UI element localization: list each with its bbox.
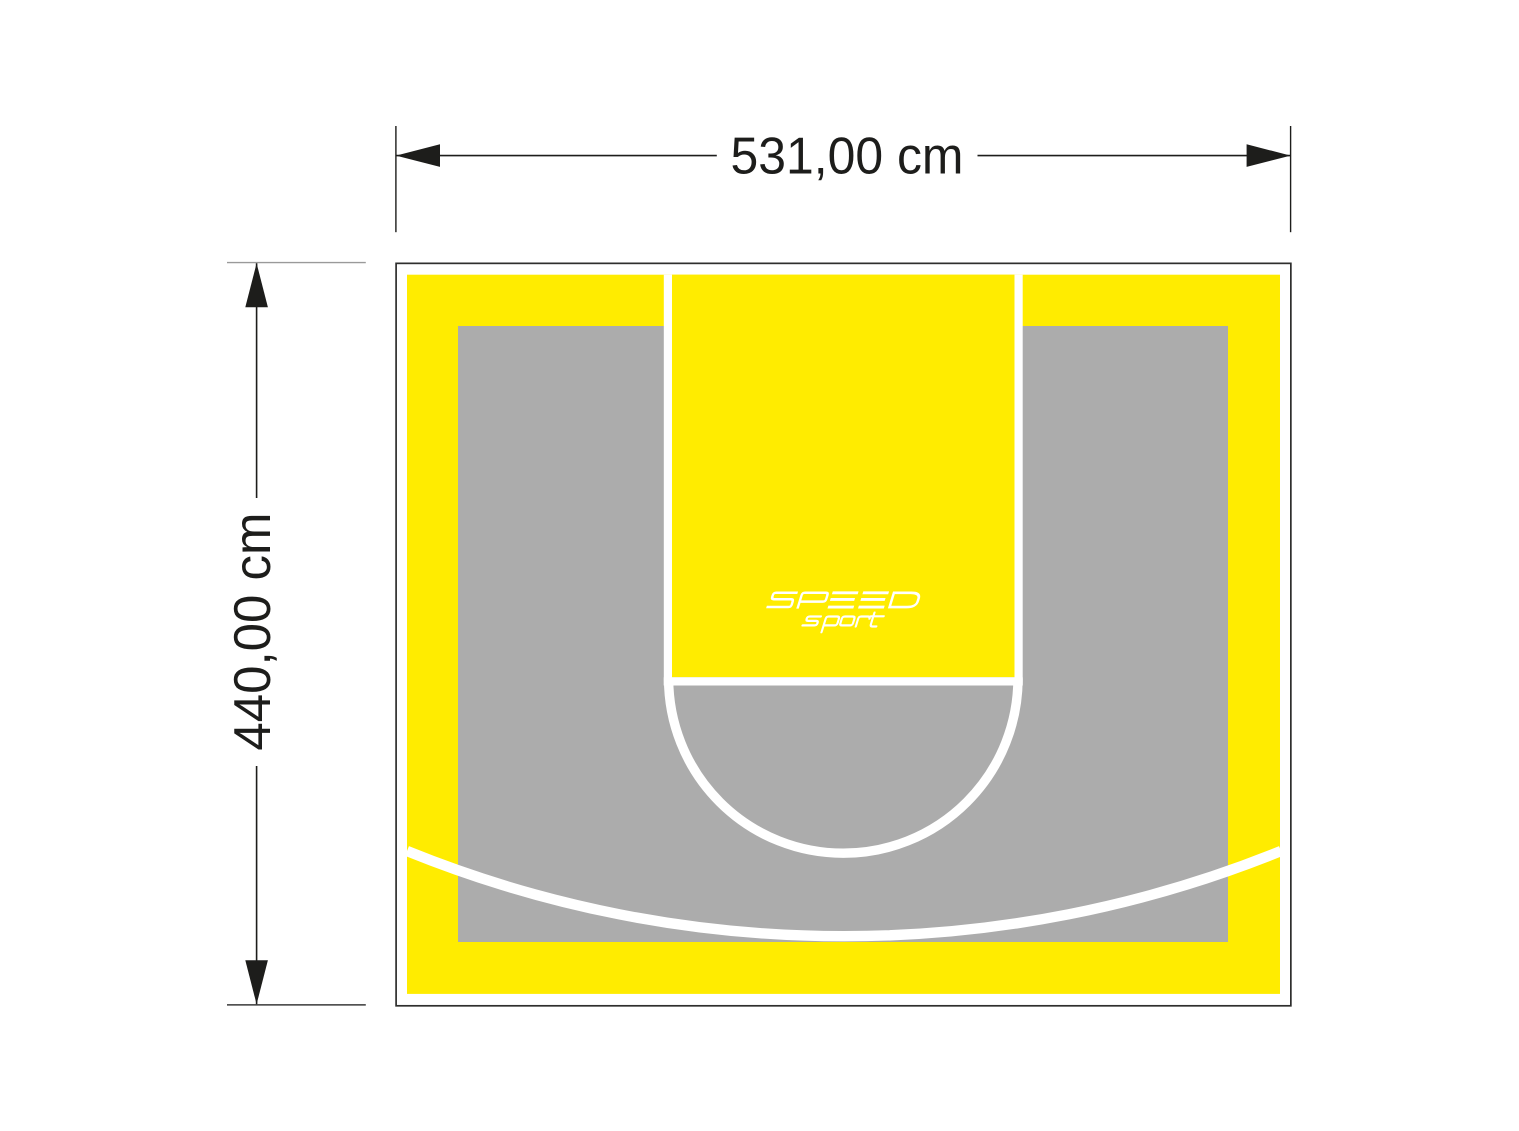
svg-text:440,00 cm: 440,00 cm [224,513,282,751]
svg-text:531,00 cm: 531,00 cm [731,127,964,185]
